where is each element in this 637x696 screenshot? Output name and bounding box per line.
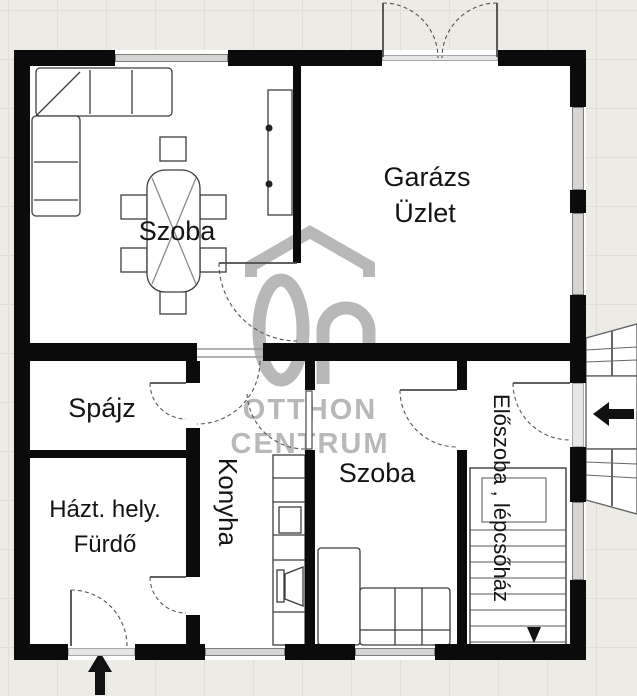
door-arc-furdo — [150, 577, 186, 613]
door-arc-entrance — [513, 383, 570, 440]
room-label-furdo: Fürdő — [25, 531, 185, 559]
floor-plan-canvas: OTTHON CENTRUM — [0, 0, 637, 696]
room-label-spajz: Spájz — [32, 393, 172, 424]
door-arc-garage-right — [442, 3, 497, 58]
door-arc-szoba2 — [400, 390, 457, 447]
room-label-uzlet: Üzlet — [355, 198, 495, 229]
room-label-szoba-bottom: Szoba — [307, 458, 447, 489]
door-arc-szoba-garazs — [219, 263, 297, 341]
door-arc-passage — [197, 361, 260, 424]
room-label-konyha: Konyha — [213, 422, 243, 582]
door-arc-bottom — [71, 590, 127, 646]
door-leaf-konyha — [306, 391, 312, 449]
doors-layer — [0, 0, 637, 696]
room-label-garazs: Garázs — [357, 162, 497, 193]
door-arc-garage-left — [383, 3, 438, 58]
door-arc-konyha — [247, 391, 305, 449]
room-label-szoba-top: Szoba — [107, 216, 247, 247]
room-label-eloszoba: Előszoba , lépcsőház — [484, 366, 514, 630]
room-label-haztartasi: Házt. hely. — [25, 496, 185, 524]
